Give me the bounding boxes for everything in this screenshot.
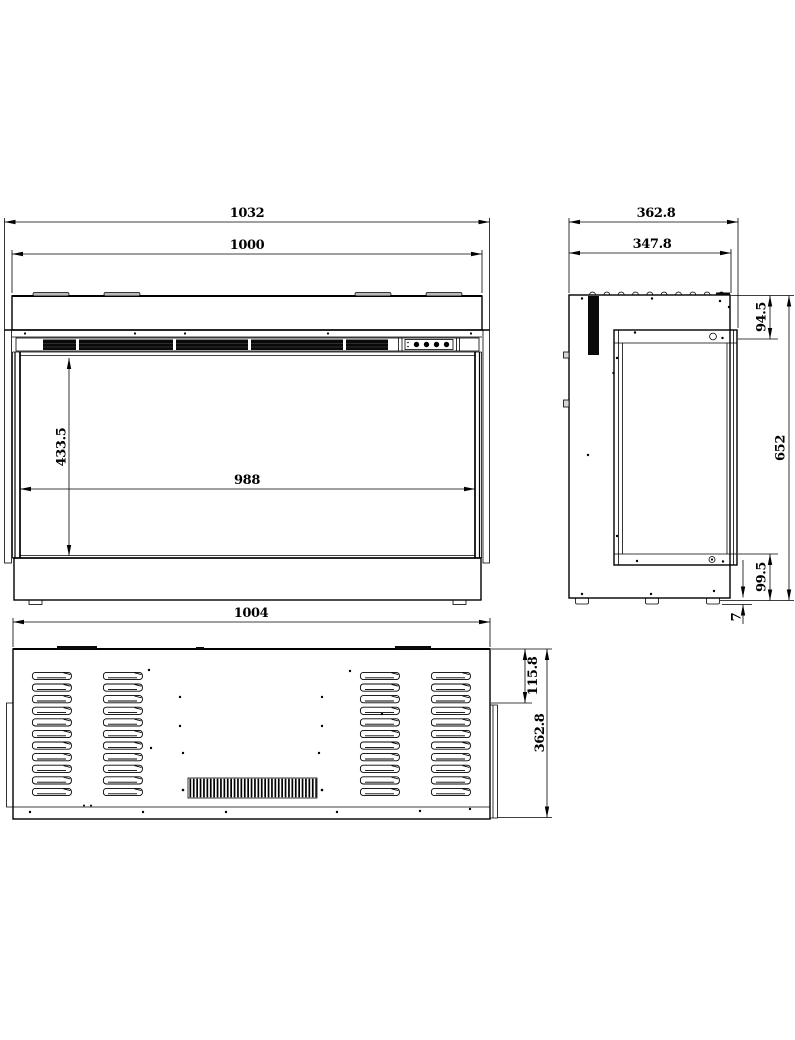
cabinet-top-section	[12, 296, 482, 330]
screw-dot	[419, 810, 421, 812]
screw-dot	[182, 752, 184, 754]
screw-dot	[581, 297, 583, 299]
screw-dot	[148, 669, 150, 671]
dim-115-8: 115.8	[526, 656, 541, 695]
technical-drawing: 1032 1000	[0, 0, 795, 1040]
mount-tab	[564, 400, 570, 407]
rear-bracket	[196, 647, 204, 650]
screw-dot	[581, 593, 583, 595]
right-flange	[483, 330, 490, 563]
screw-dot	[179, 725, 181, 727]
cable-hole	[710, 333, 717, 340]
screw-dot	[651, 297, 653, 299]
dim-1000: 1000	[230, 238, 265, 253]
screw-dot	[142, 811, 144, 813]
cable-grille	[182, 778, 324, 798]
screw-dot	[349, 670, 351, 672]
foot	[576, 598, 589, 604]
screw-dot	[184, 332, 186, 334]
mount-tab	[564, 352, 570, 358]
control-button	[434, 342, 439, 347]
dimension-opening-width: 988	[20, 473, 475, 491]
dimension-rear-width: 1004	[13, 606, 490, 647]
dim-652: 652	[774, 435, 789, 461]
dim-433-5: 433.5	[55, 427, 70, 466]
front-view: 1032 1000	[5, 206, 490, 605]
rear-bracket	[57, 646, 97, 650]
front-frame-section	[588, 296, 599, 355]
screw-dot	[612, 372, 614, 374]
control-button	[444, 342, 449, 347]
side-view: 362.8 347.8	[564, 206, 795, 624]
dim-362-8-rear: 362.8	[533, 713, 548, 752]
dim-1032: 1032	[230, 206, 265, 221]
dim-362-8-side: 362.8	[637, 206, 676, 221]
control-panel	[405, 340, 453, 350]
screw-dot	[616, 535, 618, 537]
dimension-body-depth: 347.8	[569, 237, 731, 293]
control-button	[414, 342, 419, 347]
drawing-canvas: 1032 1000	[0, 0, 795, 1040]
screw-dot	[636, 560, 638, 562]
screw-dot	[225, 811, 227, 813]
screw-dot	[83, 805, 85, 807]
screw-dot	[182, 789, 185, 792]
screw-dot	[381, 713, 383, 715]
dim-99-5: 99.5	[755, 562, 770, 592]
screw-dot	[90, 805, 92, 807]
left-flange	[5, 330, 12, 563]
dim-94-5: 94.5	[755, 302, 770, 332]
right-side-flange	[490, 705, 498, 818]
screw-dot	[470, 332, 472, 334]
screw-dot	[327, 332, 329, 334]
dimension-overall-width: 1032	[5, 206, 490, 330]
screw-dot	[321, 789, 324, 792]
left-side-flange	[7, 703, 14, 807]
dimension-corner-inset: 115.8	[491, 649, 552, 703]
screw-dot	[721, 337, 723, 339]
dim-7: 7	[730, 613, 745, 622]
top-corner-block	[716, 293, 730, 296]
dim-1004: 1004	[234, 606, 269, 621]
base-plinth	[14, 558, 481, 600]
screw-dot	[24, 332, 26, 334]
rear-bracket	[395, 646, 431, 650]
screw-dot	[719, 300, 721, 302]
screw-dot	[469, 808, 471, 810]
foot	[707, 598, 720, 604]
screw-dot	[616, 357, 618, 359]
screw-dot	[650, 593, 652, 595]
screw-dot	[321, 725, 323, 727]
glass-opening	[13, 352, 482, 558]
screw-dot	[150, 747, 152, 749]
heater-grille	[16, 338, 479, 351]
top-bracket	[426, 293, 462, 297]
foot	[646, 598, 659, 604]
rear-bottom-view: 1004	[7, 606, 553, 819]
dimension-bottom-inset: 99.5	[738, 554, 778, 601]
top-bracket	[355, 293, 391, 297]
top-bracket	[104, 293, 140, 297]
screw-dot	[728, 306, 730, 308]
control-button	[424, 342, 429, 347]
dimension-opening-height: 433.5	[55, 358, 72, 556]
screw-dot	[713, 590, 715, 592]
screw-dot	[179, 696, 181, 698]
dim-988: 988	[234, 473, 260, 488]
vent-louvers	[32, 672, 470, 795]
screw-dot	[134, 332, 136, 334]
screw-dot	[336, 811, 338, 813]
dimension-top-inset: 94.5	[731, 296, 794, 340]
top-bracket	[33, 293, 69, 297]
indicator-led	[407, 346, 409, 348]
screw-dot	[318, 752, 320, 754]
screw-dot	[29, 811, 31, 813]
dimension-inner-width: 1000	[12, 238, 482, 293]
screw-dot	[321, 696, 323, 698]
screw-dot	[634, 331, 636, 333]
screw-dot	[587, 454, 589, 456]
back-panel	[612, 330, 737, 565]
indicator-led	[407, 342, 409, 344]
screw-dot	[722, 560, 724, 562]
dimension-foot-height: 7	[722, 560, 752, 624]
dim-347-8: 347.8	[633, 237, 672, 252]
dimension-overall-height: 652	[720, 296, 794, 601]
